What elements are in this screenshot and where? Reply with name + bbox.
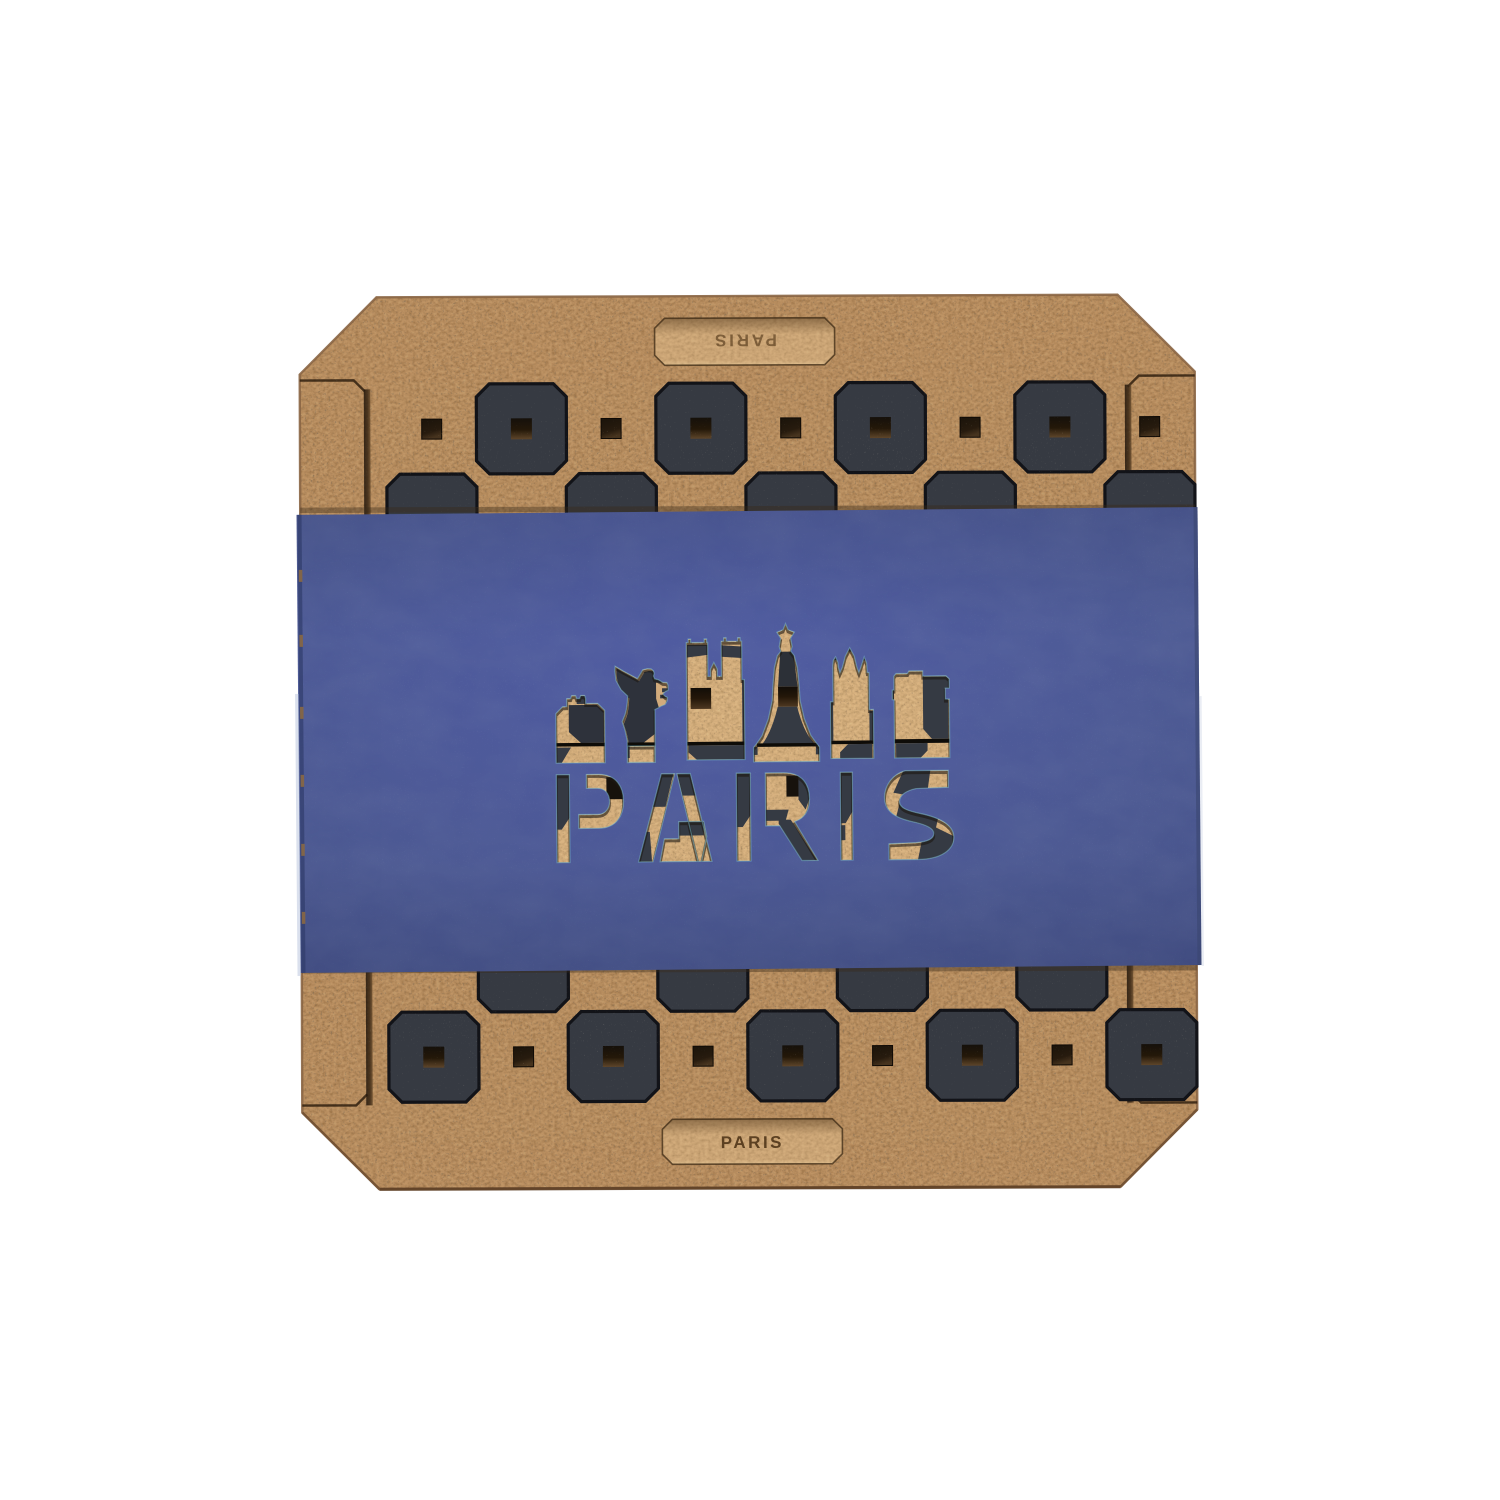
svg-text:PARIS: PARIS [712,330,777,349]
svg-text:PARIS: PARIS [721,1133,784,1152]
